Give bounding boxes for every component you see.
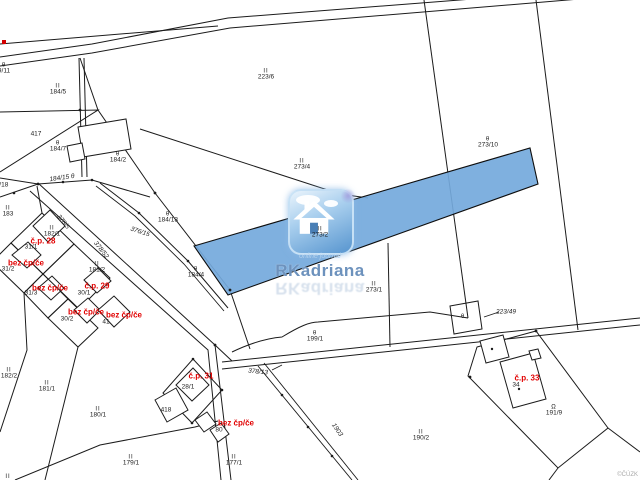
parcel-label: θ184/4: [188, 266, 204, 279]
parcel-label: 4/18: [0, 183, 8, 190]
road-label: 376/15: [129, 226, 150, 239]
parcel-label: II: [5, 474, 10, 480]
house-number-label: č.p. 28: [31, 237, 56, 246]
parcel-label: θ184/13: [158, 211, 178, 224]
house-number-label: bez čp/če: [68, 308, 104, 317]
parcel-label: 417: [31, 132, 42, 139]
parcel-label: θ199/1: [307, 330, 323, 343]
parcel-label: II190/2: [413, 429, 429, 442]
house-number-label: č.p. 29: [85, 282, 110, 291]
parcel-label: II273/2: [312, 226, 328, 239]
parcel-label: II181/2: [89, 261, 105, 274]
copyright-note: ©ČÚZK: [617, 472, 638, 478]
house-number-label: č.p. 31: [189, 372, 214, 381]
parcel-label: II177/1: [226, 454, 242, 467]
parcel-label: II179/1: [123, 454, 139, 467]
parcel-label: II184/5: [50, 83, 66, 96]
road-label: 223/49: [496, 309, 516, 316]
parcel-label: θ184/2: [110, 151, 126, 164]
parcel-label: II183: [3, 205, 14, 218]
parcel-label: 41: [102, 320, 109, 327]
parcel-label: 31/1: [25, 245, 38, 252]
cadastral-map-canvas: online journal RKadriana RKadriana θ9/11…: [0, 0, 640, 480]
parcel-label: 28/1: [182, 385, 195, 392]
red-marker: [2, 40, 6, 44]
parcel-label: 80: [215, 428, 222, 435]
house-number-label: bez čp/če: [106, 311, 142, 320]
parcel-label: II182/2: [1, 367, 17, 380]
parcel-label: 418: [161, 408, 172, 415]
parcel-label: II180/1: [90, 406, 106, 419]
parcel-label: Ω191/9: [546, 404, 562, 417]
parcel-label: 31/2: [2, 267, 15, 274]
parcel-label: θ184/7: [50, 140, 66, 153]
map-labels: θ9/11II184/5417θ184/7θ184/2II223/6θ273/1…: [0, 0, 640, 480]
parcel-label: θ: [461, 314, 465, 320]
house-number-label: bez čp/če: [32, 284, 68, 293]
road-label: 184/15 θ: [49, 173, 75, 183]
parcel-label: II273/4: [294, 158, 310, 171]
parcel-label: 30/2: [61, 317, 74, 324]
road-label: 1903: [330, 422, 344, 438]
parcel-label: II223/6: [258, 68, 274, 81]
house-number-label: bez čp/če: [8, 259, 44, 268]
road-label: 378/52: [92, 240, 110, 260]
parcel-label: θ9/11: [0, 62, 10, 75]
parcel-label: II273/1: [366, 281, 382, 294]
parcel-label: θ273/10: [478, 136, 498, 149]
parcel-label: II181/1: [39, 380, 55, 393]
house-number-label: č.p. 33: [515, 374, 540, 383]
parcel-label: 34: [512, 383, 519, 390]
parcel-label: 30/1: [78, 291, 91, 298]
road-label: 378/13: [248, 367, 269, 376]
house-number-label: bez čp/če: [218, 419, 254, 428]
